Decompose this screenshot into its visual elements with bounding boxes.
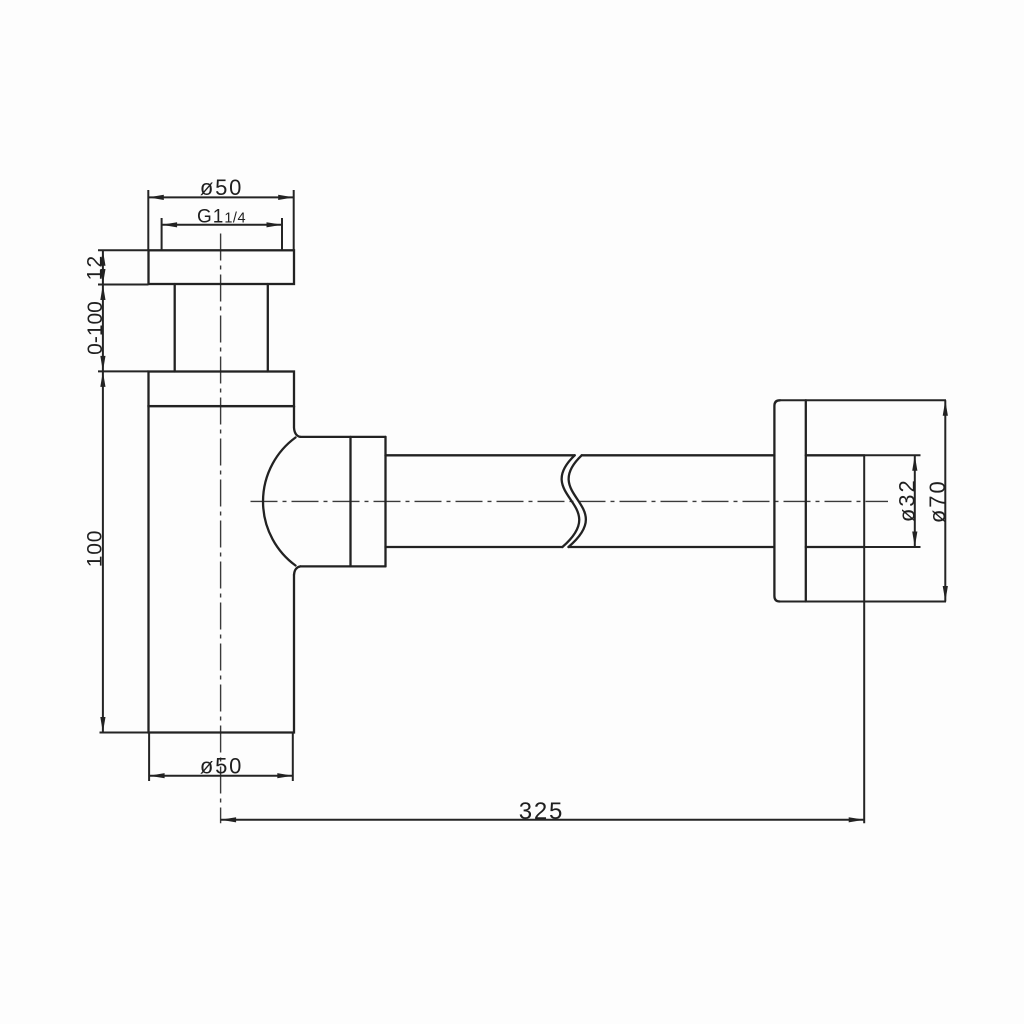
svg-text:100: 100 — [84, 530, 107, 567]
svg-text:G11/4: G11/4 — [197, 207, 246, 228]
svg-text:0-100: 0-100 — [84, 301, 107, 355]
svg-text:ø50: ø50 — [200, 175, 243, 200]
svg-text:ø50: ø50 — [200, 754, 243, 779]
svg-text:12: 12 — [84, 255, 107, 281]
svg-text:ø32: ø32 — [894, 478, 919, 522]
svg-text:ø70: ø70 — [925, 479, 950, 523]
svg-text:325: 325 — [519, 798, 564, 825]
